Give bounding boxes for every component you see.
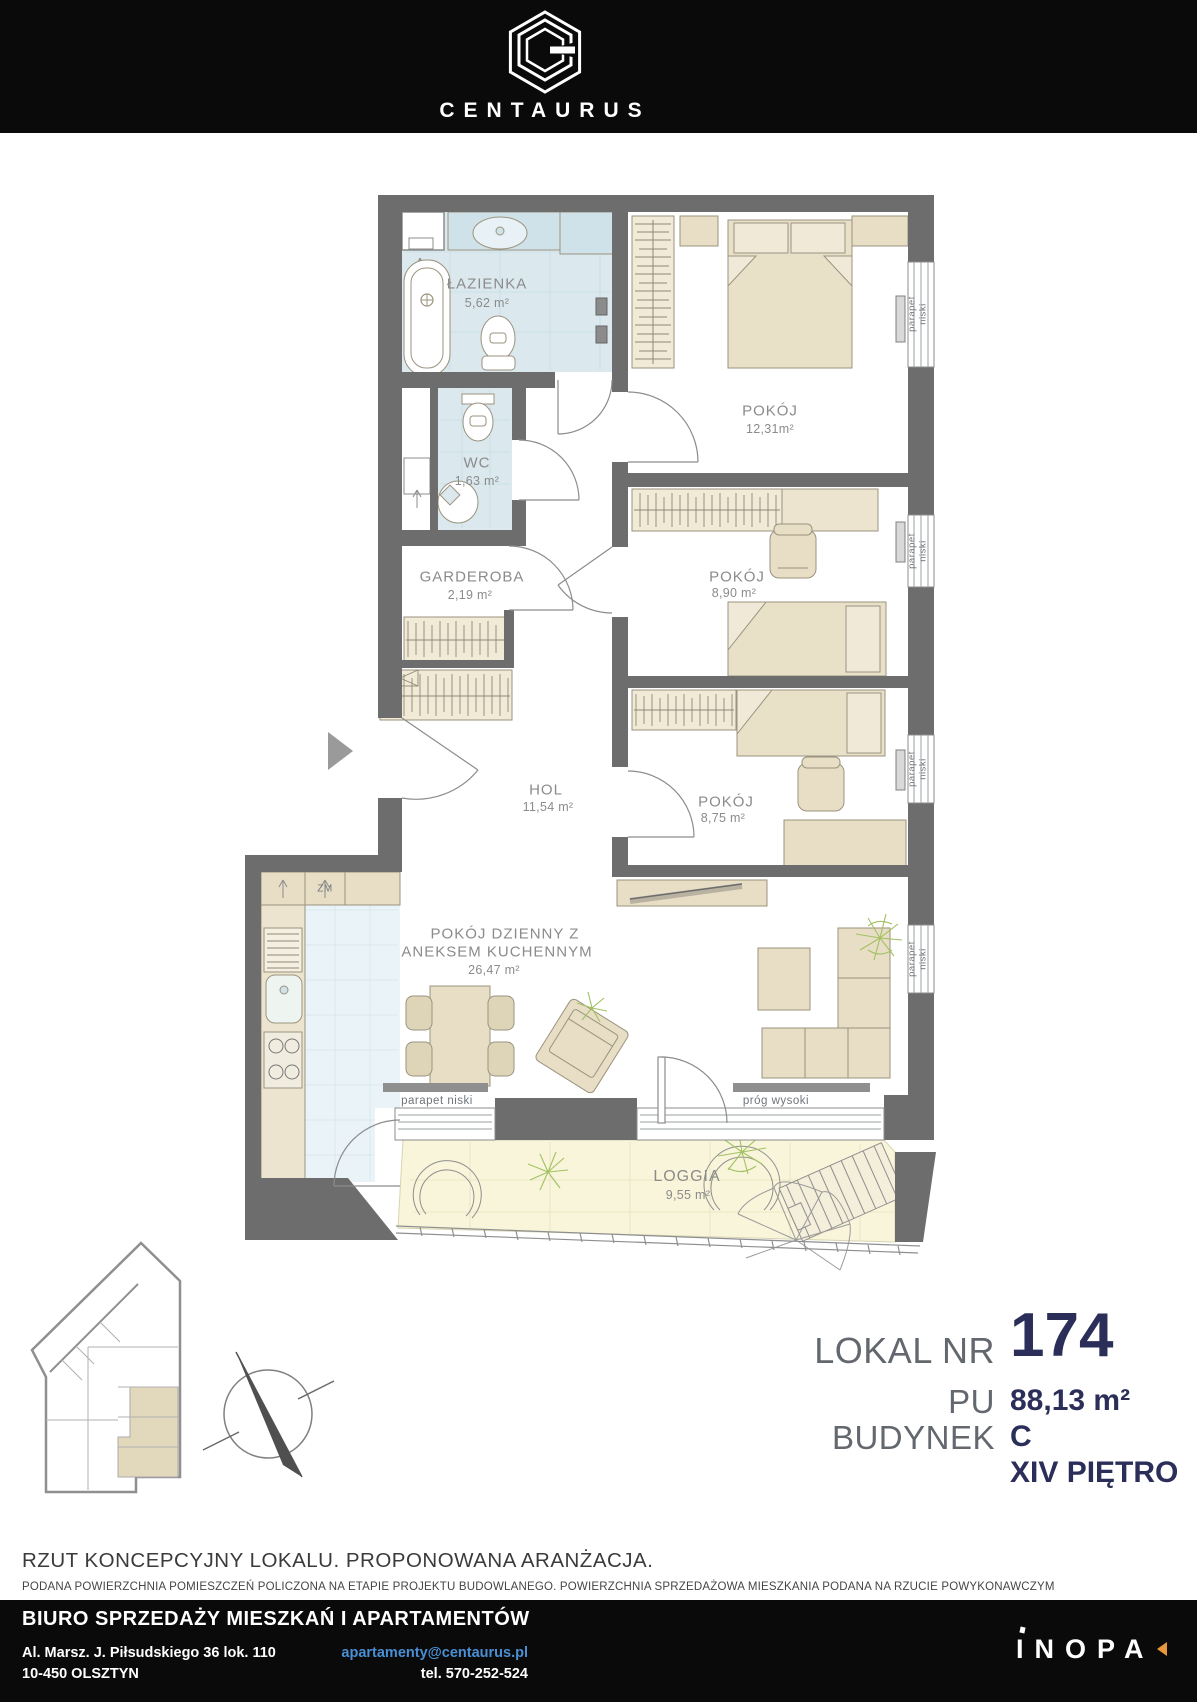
annot-parapet-niski: parapet niski bbox=[401, 1095, 473, 1107]
room-label-dzienny-1: POKÓJ DZIENNY Z bbox=[431, 926, 580, 943]
room-area-wc: 1,63 m² bbox=[455, 474, 499, 488]
room-area-hol: 11,54 m² bbox=[523, 800, 574, 814]
room-label-lazienka: ŁAZIENKA bbox=[447, 276, 528, 293]
inopa-logo: INOPA bbox=[1016, 1634, 1155, 1665]
inopa-logo-dot-icon bbox=[1019, 1627, 1025, 1634]
room-label-pokoj875: POKÓJ bbox=[698, 794, 754, 811]
budynek-label: BUDYNEK bbox=[700, 1419, 995, 1457]
pu-label: PU bbox=[700, 1383, 995, 1421]
room-label-pokoj890: POKÓJ bbox=[709, 569, 765, 586]
pietro-value: XIV PIĘTRO bbox=[1010, 1456, 1178, 1490]
annot-parapet-vertical-4: parapetniski bbox=[907, 941, 930, 977]
disclaimer-title: RZUT KONCEPCYJNY LOKALU. PROPONOWANA ARA… bbox=[22, 1549, 653, 1573]
annot-parapet-vertical-1: parapetniski bbox=[907, 296, 930, 332]
footer-address-line1: Al. Marsz. J. Piłsudskiego 36 lok. 110 bbox=[22, 1645, 276, 1661]
footer-bar: BIURO SPRZEDAŻY MIESZKAŃ I APARTAMENTÓW … bbox=[0, 1600, 1197, 1702]
page: CENTAURUS bbox=[0, 0, 1197, 1707]
room-area-garderoba: 2,19 m² bbox=[448, 588, 492, 602]
room-area-pokoj890: 8,90 m² bbox=[712, 586, 756, 600]
pu-value: 88,13 m² bbox=[1010, 1384, 1130, 1418]
footer-email-link[interactable]: apartamenty@centaurus.pl bbox=[300, 1645, 528, 1661]
room-area-pokoj12: 12,31m² bbox=[746, 422, 794, 436]
footer-phone: tel. 570-252-524 bbox=[300, 1666, 528, 1682]
annot-parapet-vertical-3: parapetniski bbox=[907, 751, 930, 787]
room-label-wc: WC bbox=[464, 455, 491, 472]
room-area-dzienny: 26,47 m² bbox=[468, 963, 520, 977]
room-label-pokoj12: POKÓJ bbox=[742, 403, 798, 420]
room-label-hol: HOL bbox=[529, 782, 563, 799]
inopa-logo-arrow-icon bbox=[1157, 1642, 1167, 1656]
room-area-loggia: 9,55 m² bbox=[666, 1188, 710, 1202]
room-area-pokoj875: 8,75 m² bbox=[701, 811, 745, 825]
room-area-lazienka: 5,62 m² bbox=[465, 296, 509, 310]
disclaimer-note: PODANA POWIERZCHNIA POMIESZCZEŃ POLICZON… bbox=[22, 1581, 1055, 1593]
footer-address-line2: 10-450 OLSZTYN bbox=[22, 1666, 139, 1682]
budynek-value: C bbox=[1010, 1420, 1032, 1454]
room-label-loggia: LOGGIA bbox=[653, 1168, 720, 1186]
room-label-garderoba: GARDEROBA bbox=[420, 569, 525, 586]
annot-zm: ZM bbox=[317, 884, 332, 895]
annot-parapet-vertical-2: parapetniski bbox=[907, 533, 930, 569]
lokal-nr-label: LOKAL NR bbox=[700, 1330, 995, 1372]
lokal-nr-value: 174 bbox=[1010, 1300, 1113, 1371]
room-label-dzienny-2: ANEKSEM KUCHENNYM bbox=[401, 944, 592, 961]
footer-title: BIURO SPRZEDAŻY MIESZKAŃ I APARTAMENTÓW bbox=[22, 1608, 530, 1631]
annot-prog-wysoki: próg wysoki bbox=[743, 1095, 809, 1107]
